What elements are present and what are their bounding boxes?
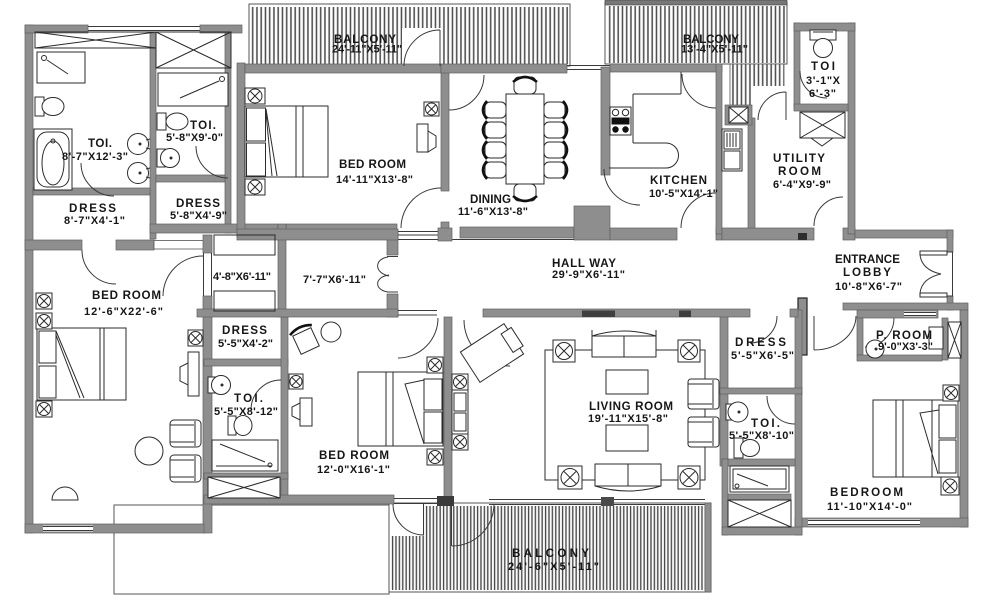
svg-text:12'-6"X22'-6": 12'-6"X22'-6" [84, 306, 163, 318]
svg-text:12'-0"X16'-1": 12'-0"X16'-1" [317, 464, 390, 476]
svg-text:TOI.: TOI. [190, 119, 216, 132]
svg-text:14'-11"X13'-8": 14'-11"X13'-8" [336, 174, 413, 186]
svg-text:5'-8"X9'-0": 5'-8"X9'-0" [166, 132, 223, 144]
svg-text:5'-8"X4'-9": 5'-8"X4'-9" [170, 210, 227, 222]
svg-text:10'-5"X14'-1": 10'-5"X14'-1" [649, 188, 718, 200]
svg-text:BED ROOM: BED ROOM [339, 158, 406, 171]
svg-text:ROOM: ROOM [778, 165, 821, 178]
svg-text:29'-9"X6'-11": 29'-9"X6'-11" [552, 269, 625, 281]
svg-text:BED ROOM: BED ROOM [319, 449, 389, 462]
svg-text:UTILITY: UTILITY [773, 152, 825, 165]
svg-text:5'-5"X6'-5": 5'-5"X6'-5" [731, 350, 794, 362]
svg-text:BALCONY: BALCONY [512, 547, 589, 560]
svg-text:24'-6"X5'-11": 24'-6"X5'-11" [508, 561, 599, 573]
svg-text:5'-5"X8'-12": 5'-5"X8'-12" [214, 406, 278, 418]
svg-text:4'-8"X6'-11": 4'-8"X6'-11" [213, 271, 271, 283]
svg-text:11'-10"X14'-0": 11'-10"X14'-0" [827, 501, 912, 513]
svg-text:19'-11"X15'-8": 19'-11"X15'-8" [588, 413, 668, 425]
svg-text:BED ROOM: BED ROOM [92, 289, 161, 302]
svg-text:8'-7"X12'-3": 8'-7"X12'-3" [62, 151, 128, 163]
svg-text:ENTRANCE: ENTRANCE [835, 253, 900, 266]
svg-text:3'-1"X: 3'-1"X [806, 75, 841, 87]
svg-text:DRESS: DRESS [222, 324, 267, 337]
svg-text:24'-11"X5'-11": 24'-11"X5'-11" [332, 44, 402, 56]
svg-text:10'-8"X6'-7": 10'-8"X6'-7" [835, 281, 902, 293]
svg-text:TOI.: TOI. [88, 137, 112, 150]
svg-text:9'-0"X3'-3": 9'-0"X3'-3" [878, 341, 933, 353]
svg-text:13'-4"X5'-11": 13'-4"X5'-11" [681, 44, 748, 56]
svg-text:5'-5"X8'-10": 5'-5"X8'-10" [729, 430, 794, 442]
svg-text:8'-7"X4'-1": 8'-7"X4'-1" [64, 215, 125, 227]
svg-text:DINING: DINING [470, 193, 511, 206]
svg-text:DRESS: DRESS [69, 202, 116, 215]
svg-text:DRESS: DRESS [176, 197, 220, 210]
svg-text:11'-6"X13'-8": 11'-6"X13'-8" [458, 206, 528, 218]
svg-text:LIVING ROOM: LIVING ROOM [589, 400, 673, 413]
svg-text:5'-5"X4'-2": 5'-5"X4'-2" [218, 338, 273, 350]
svg-text:DRESS: DRESS [735, 336, 786, 349]
svg-text:6'-3": 6'-3" [809, 88, 836, 100]
svg-text:7'-7"X6'-11": 7'-7"X6'-11" [303, 274, 366, 286]
svg-text:6'-4"X9'-9": 6'-4"X9'-9" [773, 179, 831, 191]
svg-text:TOI: TOI [811, 60, 835, 73]
svg-text:KITCHEN: KITCHEN [650, 174, 707, 187]
